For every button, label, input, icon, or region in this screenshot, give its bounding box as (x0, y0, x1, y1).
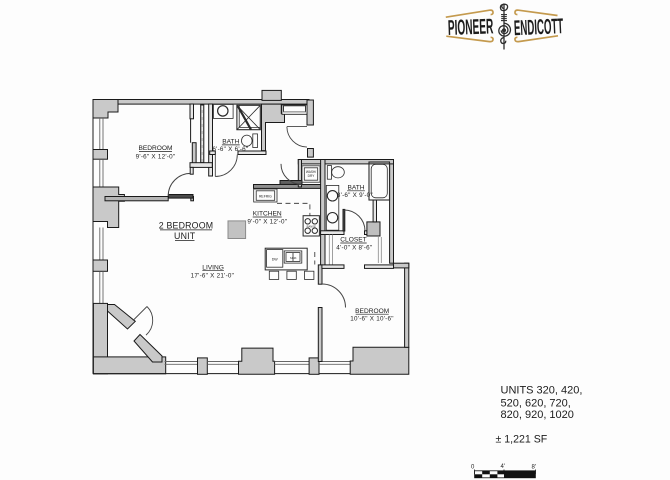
svg-text:820, 920, 1020: 820, 920, 1020 (501, 409, 574, 421)
svg-text:8'-6" X 9'-0": 8'-6" X 9'-0" (337, 192, 373, 199)
svg-text:± 1,221 SF: ± 1,221 SF (496, 434, 548, 446)
svg-text:4'-0" X 8'-6": 4'-0" X 8'-6" (336, 245, 372, 252)
svg-text:17'-6" X 21'-0": 17'-6" X 21'-0" (191, 273, 235, 280)
svg-text:520, 620, 720,: 520, 620, 720, (501, 398, 571, 410)
svg-text:RANGE: RANGE (307, 225, 316, 229)
svg-text:6'-6" X 6'-6": 6'-6" X 6'-6" (212, 146, 248, 153)
svg-text:4': 4' (501, 464, 505, 470)
svg-text:9'-0" X 12'-0": 9'-0" X 12'-0" (247, 219, 287, 226)
svg-text:10'-6" X 10'-6": 10'-6" X 10'-6" (350, 316, 394, 323)
svg-text:DW: DW (272, 257, 279, 261)
svg-text:UNIT: UNIT (174, 231, 196, 241)
svg-text:SINK: SINK (290, 256, 297, 260)
svg-text:9'-6" X 12'-0": 9'-6" X 12'-0" (136, 154, 176, 161)
svg-text:ENDICOTT: ENDICOTT (513, 14, 563, 41)
svg-text:2 BEDROOM: 2 BEDROOM (159, 220, 214, 230)
svg-text:REFRIG: REFRIG (259, 195, 272, 199)
svg-text:PIONEER: PIONEER (447, 14, 493, 40)
svg-text:UNITS 320, 420,: UNITS 320, 420, (501, 385, 583, 397)
svg-text:DRY: DRY (308, 174, 316, 178)
